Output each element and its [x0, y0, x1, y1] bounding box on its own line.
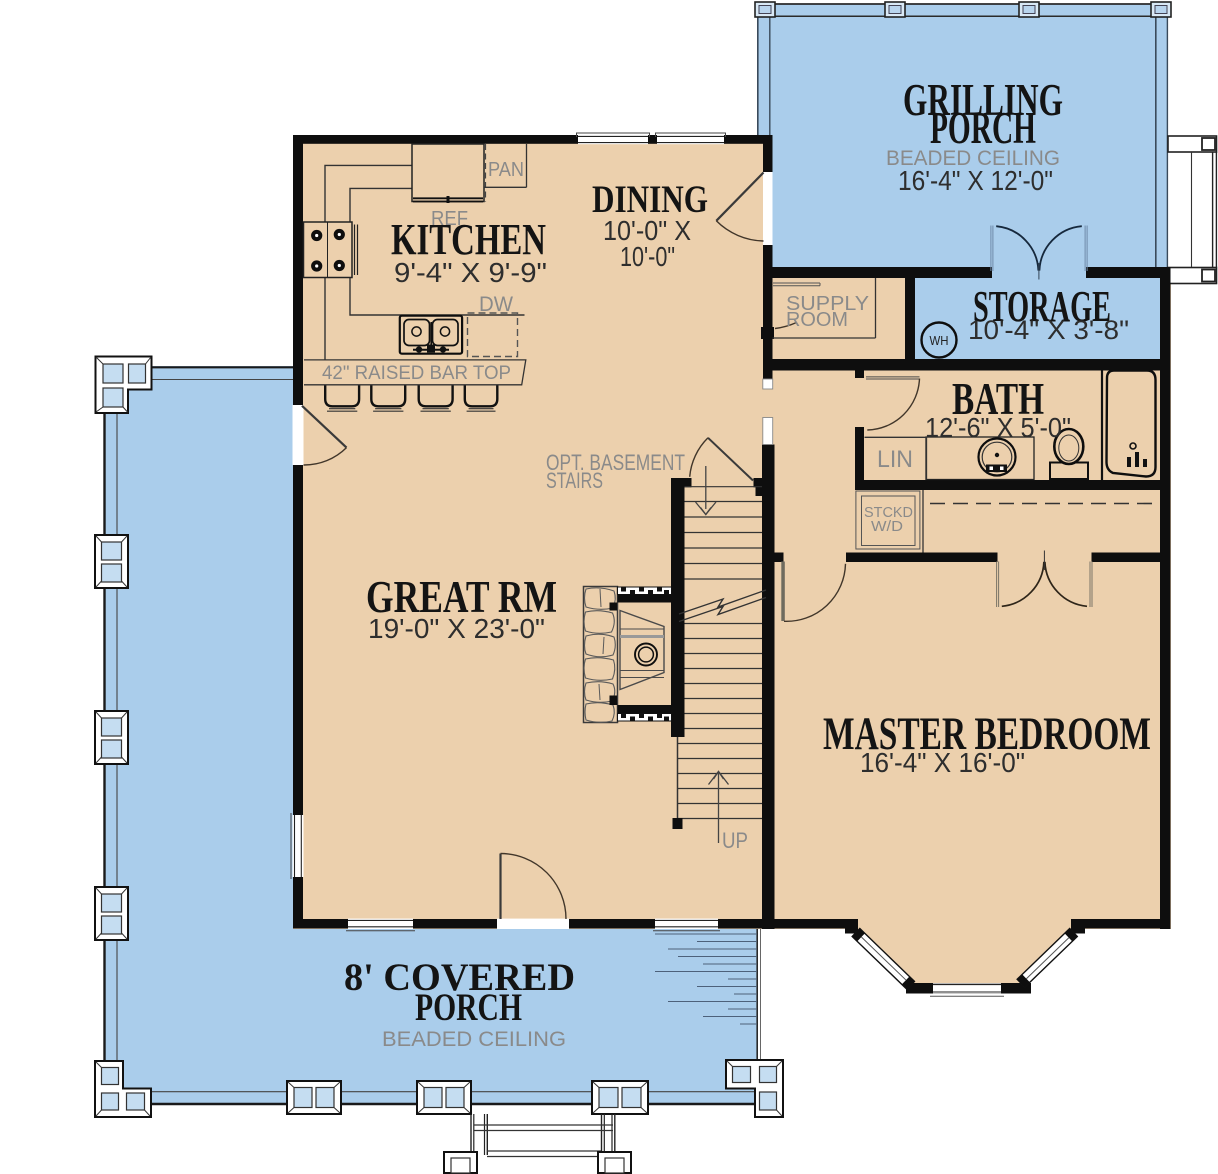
svg-text:PAN: PAN [488, 159, 524, 181]
svg-text:12'-6" X 5'-0": 12'-6" X 5'-0" [925, 412, 1071, 443]
svg-text:ROOM: ROOM [786, 309, 848, 331]
svg-text:10'-0": 10'-0" [620, 241, 675, 272]
svg-text:W/D: W/D [871, 518, 903, 535]
svg-text:16'-4" X 12'-0": 16'-4" X 12'-0" [898, 165, 1053, 196]
svg-text:UP: UP [722, 828, 748, 853]
svg-text:10'-4" X 3'-8": 10'-4" X 3'-8" [968, 315, 1129, 345]
svg-text:LIN: LIN [877, 446, 913, 473]
svg-text:42" RAISED BAR TOP: 42" RAISED BAR TOP [322, 363, 511, 384]
svg-text:WH: WH [930, 333, 949, 348]
svg-text:DW: DW [479, 293, 513, 316]
svg-text:STAIRS: STAIRS [546, 468, 603, 493]
svg-text:PORCH: PORCH [415, 986, 522, 1029]
svg-text:16'-4" X 16'-0": 16'-4" X 16'-0" [860, 747, 1025, 778]
svg-text:REF: REF [431, 208, 468, 230]
svg-text:BEADED CEILING: BEADED CEILING [382, 1028, 566, 1051]
svg-text:9'-4" X 9'-9": 9'-4" X 9'-9" [394, 257, 547, 288]
svg-text:19'-0" X 23'-0": 19'-0" X 23'-0" [368, 613, 545, 644]
svg-text:PORCH: PORCH [930, 103, 1036, 153]
